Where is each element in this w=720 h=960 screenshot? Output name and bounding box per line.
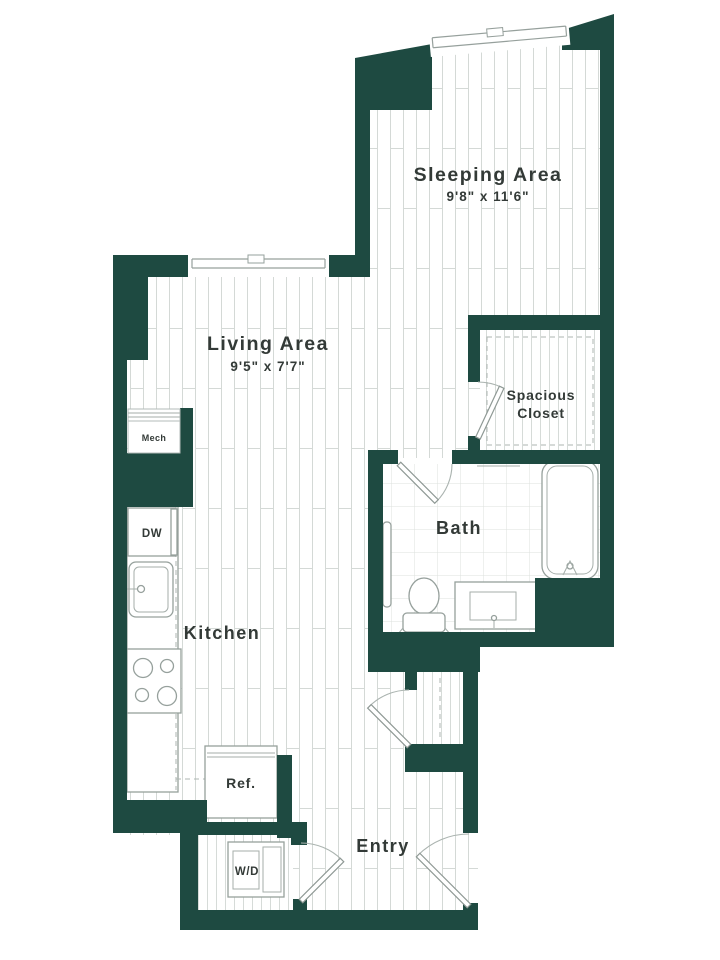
entry-closet-floor: [417, 672, 463, 744]
mech-closet: [128, 409, 180, 453]
mech-label: Mech: [142, 433, 167, 443]
refrigerator-label: Ref.: [226, 775, 256, 791]
living-area-label: Living Area: [207, 333, 329, 355]
sleeping-area-dimensions: 9'8" x 11'6": [446, 189, 529, 204]
spacious-closet-label-line2: Closet: [517, 405, 565, 421]
living-window: [188, 255, 329, 277]
bath-vanity: [455, 582, 537, 629]
bathtub: [542, 461, 598, 579]
floor-plan: Sleeping Area 9'8" x 11'6" Living Area 9…: [0, 0, 720, 960]
kitchen-label: Kitchen: [184, 623, 261, 643]
stove: [127, 649, 181, 713]
entry-label: Entry: [356, 836, 410, 856]
living-area-dimensions: 9'5" x 7'7": [230, 359, 305, 374]
floor-plan-page: Sleeping Area 9'8" x 11'6" Living Area 9…: [0, 0, 720, 960]
dishwasher-label: DW: [142, 528, 162, 540]
spacious-closet-label-line1: Spacious: [507, 387, 576, 403]
bath-label: Bath: [436, 518, 482, 538]
kitchen-sink: [127, 562, 173, 617]
sleeping-area-label: Sleeping Area: [414, 164, 563, 186]
washer-dryer-label: W/D: [235, 866, 259, 878]
